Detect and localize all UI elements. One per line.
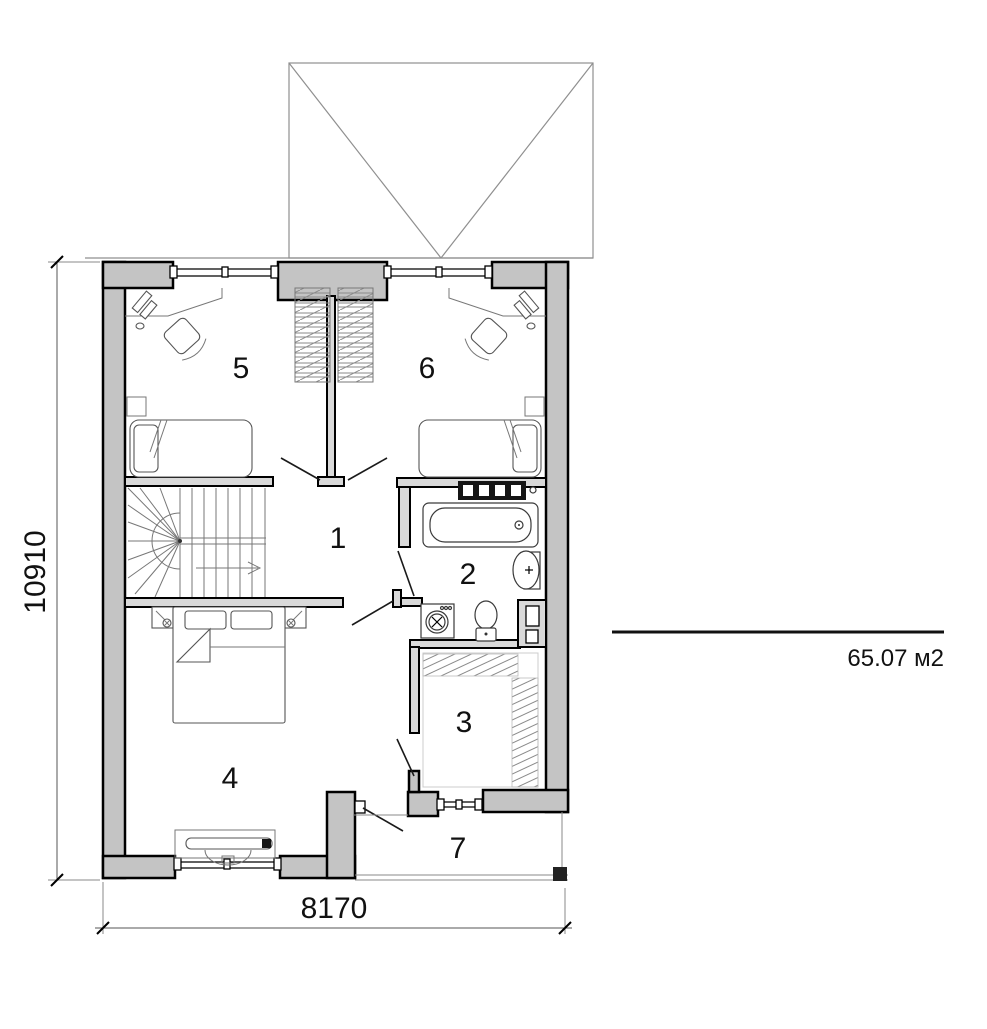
room6-furniture (419, 288, 546, 477)
staircase (128, 488, 266, 597)
dimension-width: 8170 (95, 882, 572, 934)
area-label: 65.07 м2 (847, 645, 944, 672)
room-label-4: 4 (222, 762, 239, 795)
single-bed (130, 420, 252, 477)
door-closet (397, 739, 414, 776)
area-annotation: 65.07 м2 (612, 632, 944, 672)
door-room4 (352, 601, 393, 625)
floor-plan-drawing: 10910 8170 65.07 м2 1 2 3 4 5 6 7 (0, 0, 987, 1024)
door-entrance (363, 808, 403, 831)
dimension-width-label: 8170 (301, 892, 368, 925)
room-label-2: 2 (460, 558, 477, 591)
sink (513, 551, 540, 589)
headboard-shelf (127, 397, 146, 416)
door-room5 (281, 458, 320, 480)
vent-duct (526, 606, 539, 626)
washing-machine (421, 604, 454, 638)
floor-plan-canvas: 10910 8170 65.07 м2 1 2 3 4 5 6 7 (0, 0, 987, 1024)
nightstand-left (152, 607, 173, 628)
dimension-height-label: 10910 (19, 530, 52, 613)
toilet (475, 601, 497, 641)
roof-outline (85, 63, 593, 258)
dimension-height: 10910 (19, 256, 100, 886)
single-bed (419, 420, 541, 477)
room-label-6: 6 (419, 352, 436, 385)
nightstand-right (285, 607, 306, 628)
mouse (527, 323, 535, 329)
room-label-3: 3 (456, 706, 473, 739)
window-room5 (170, 266, 278, 278)
computer (512, 291, 539, 319)
closet-shelving (423, 653, 538, 787)
window-room4 (174, 858, 281, 870)
room-label-1: 1 (330, 522, 347, 555)
pillow (231, 611, 272, 629)
room-label-7: 7 (450, 832, 467, 865)
mouse (136, 323, 144, 329)
pillow (185, 611, 226, 629)
window-room6 (384, 266, 492, 278)
vent-duct (526, 630, 538, 643)
room-label-5: 5 (233, 352, 250, 385)
pillow (513, 425, 537, 472)
double-bed (173, 607, 285, 723)
bathtub (423, 503, 538, 547)
computer (132, 291, 159, 319)
porch-post (553, 867, 567, 881)
room4-furniture (152, 607, 306, 865)
door-swings (281, 458, 414, 831)
headboard-shelf (525, 397, 544, 416)
towel-radiator (458, 481, 536, 500)
office-chair (462, 315, 511, 364)
window-porch (437, 799, 482, 810)
office-chair (161, 315, 210, 364)
pillow (134, 425, 158, 472)
door-room6 (348, 458, 387, 480)
